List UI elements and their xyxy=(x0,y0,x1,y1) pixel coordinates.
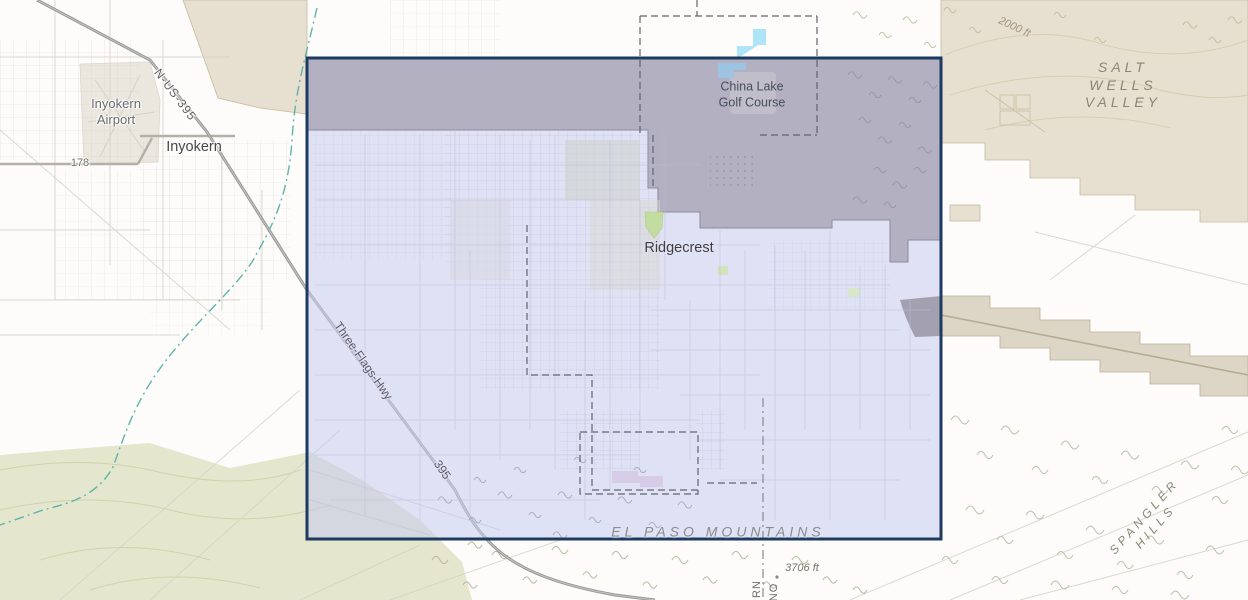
map-viewport[interactable]: Inyokern Airport Inyokern 178 N-US-395 S… xyxy=(0,0,1248,600)
orchard-dots xyxy=(710,156,756,186)
map-canvas[interactable] xyxy=(0,0,1248,600)
elevation-point xyxy=(775,575,778,578)
golf-course-patch xyxy=(730,72,776,114)
